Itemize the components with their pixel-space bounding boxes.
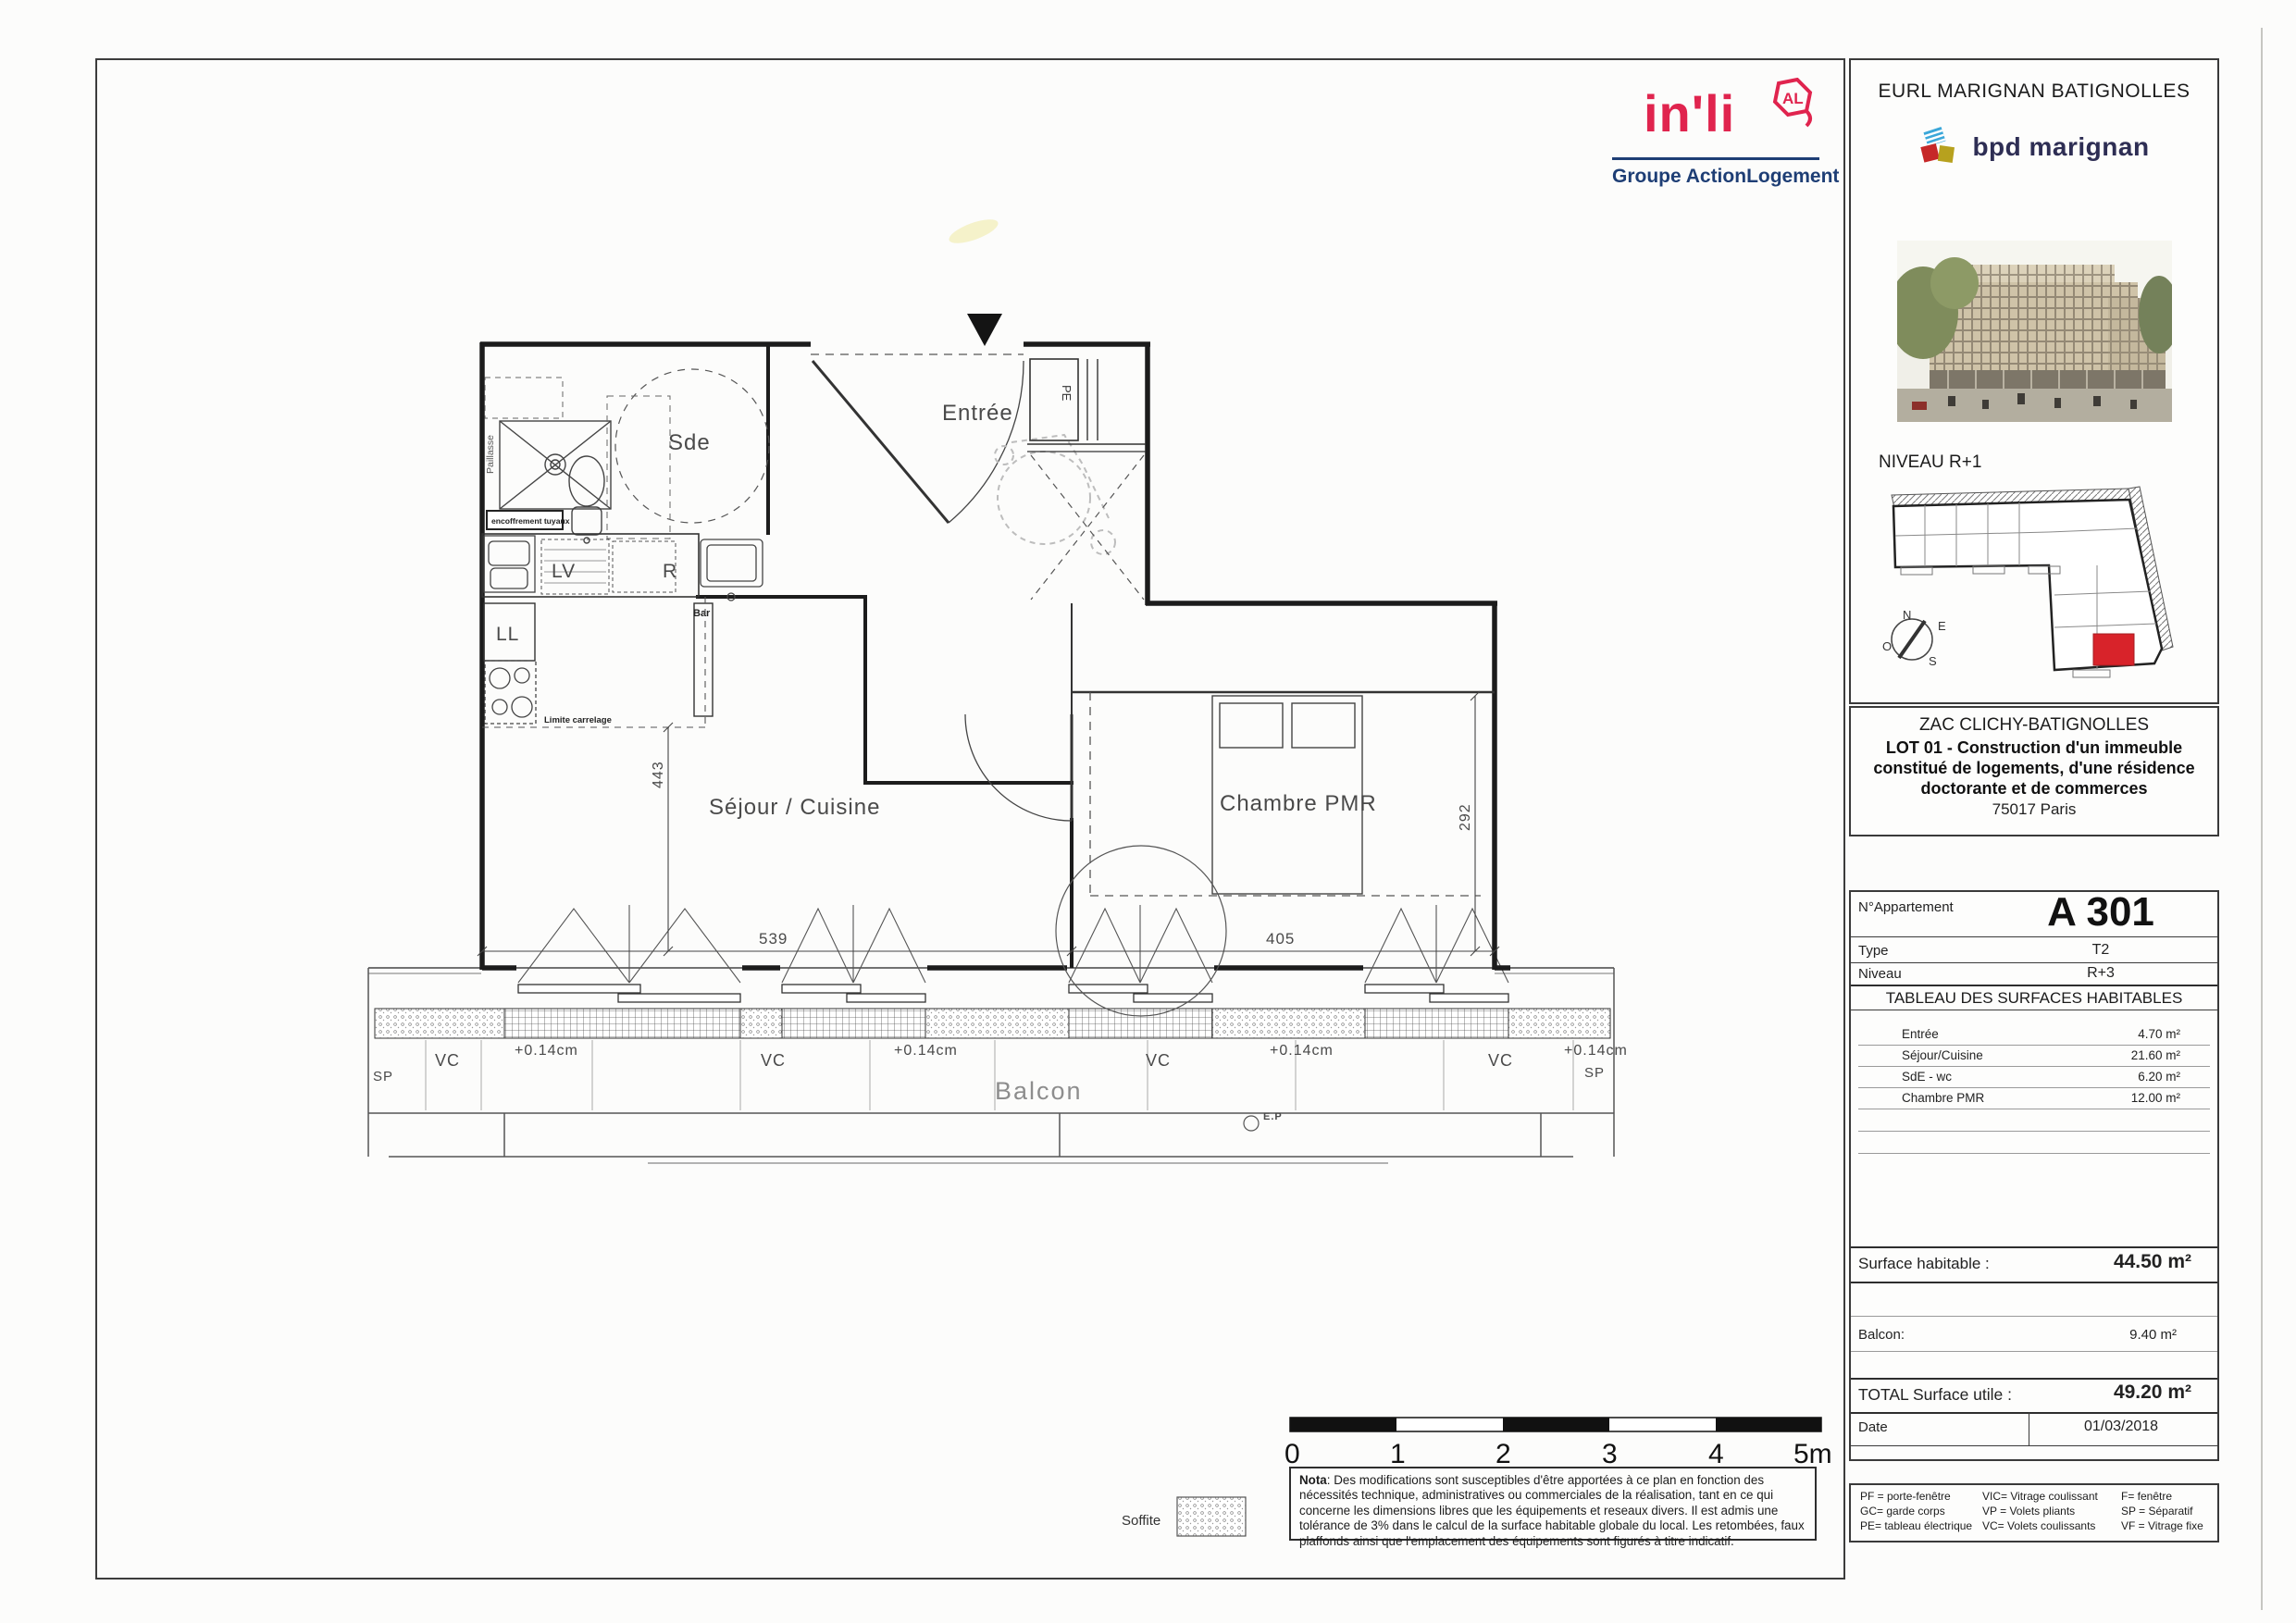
room-row-area: 12.00 m²	[2131, 1091, 2180, 1105]
legend-item: VP = Volets pliants	[1982, 1505, 2098, 1519]
nota-box: Nota: Des modifications sont susceptible…	[1289, 1467, 1817, 1541]
room-row-area: 4.70 m²	[2138, 1027, 2180, 1041]
inli-group-bold: Logement	[1746, 166, 1839, 187]
project-city: 75017 Paris	[1851, 800, 2217, 819]
room-row-label: Chambre PMR	[1902, 1091, 1984, 1105]
compass-icon: N E O S	[1882, 608, 1946, 668]
legend-col-1: PF = porte-fenêtre GC= garde corps PE= t…	[1860, 1490, 1972, 1533]
keyplan: N E O S	[1864, 475, 2204, 700]
project-box: ZAC CLICHY-BATIGNOLLES LOT 01 - Construc…	[1849, 706, 2219, 836]
inli-al-badge-icon: AL	[1758, 78, 1819, 137]
inli-rule	[1612, 157, 1819, 160]
surface-value: 44.50 m²	[2114, 1251, 2191, 1273]
inli-logo: in'li AL Groupe ActionLogement	[1612, 78, 1819, 188]
date-value: 01/03/2018	[2029, 1419, 2214, 1435]
surface-label: Surface habitable :	[1858, 1255, 1990, 1273]
apartment-table: N°Appartement A 301 Type T2 Niveau R+3 T…	[1849, 890, 2219, 1461]
balcony-label: Balcon:	[1858, 1327, 1905, 1343]
paper-edge	[2261, 28, 2263, 1610]
keyplan-level-label: NIVEAU R+1	[1879, 452, 1981, 473]
room-row-label: SdE - wc	[1902, 1070, 1952, 1084]
room-row-label: Entrée	[1902, 1027, 1939, 1041]
legend-item: F= fenêtre	[2121, 1490, 2203, 1505]
legend-box: PF = porte-fenêtre GC= garde corps PE= t…	[1849, 1483, 2219, 1542]
apartment-type-label: Type	[1858, 943, 1889, 959]
legend-col-2: VIC= Vitrage coulissant VP = Volets plia…	[1982, 1490, 2098, 1533]
svg-text:S: S	[1929, 654, 1937, 668]
total-value: 49.20 m²	[2114, 1381, 2191, 1404]
svg-text:N: N	[1903, 608, 1911, 622]
nota-body: : Des modifications sont susceptibles d'…	[1299, 1473, 1805, 1548]
room-row-area: 21.60 m²	[2131, 1048, 2180, 1062]
legend-item: PE= tableau électrique	[1860, 1519, 1972, 1534]
project-zac: ZAC CLICHY-BATIGNOLLES	[1851, 715, 2217, 736]
main-drawing-frame	[95, 58, 1845, 1580]
legend-item: VC= Volets coulissants	[1982, 1519, 2098, 1534]
inli-group-label: Groupe ActionLogement	[1612, 166, 1819, 188]
balcony-value: 9.40 m²	[2129, 1327, 2177, 1343]
building-photo	[1897, 241, 2172, 422]
keyplan-unit-highlight	[2093, 634, 2134, 665]
bpd-marignan-logo: bpd marignan	[1851, 127, 2217, 167]
svg-text:AL: AL	[1782, 90, 1804, 107]
inli-group-normal: Groupe Action	[1612, 166, 1746, 187]
company-title: EURL MARIGNAN BATIGNOLLES	[1851, 81, 2217, 103]
apartment-number-label: N°Appartement	[1858, 899, 1954, 915]
floorplan-sheet: { "header": { "company": "EURL MARIGNAN …	[0, 0, 2296, 1623]
date-label: Date	[1858, 1419, 1888, 1435]
inli-wordmark: in'li	[1644, 91, 1735, 137]
svg-text:E: E	[1938, 619, 1946, 633]
surfaces-table-title: TABLEAU DES SURFACES HABITABLES	[1851, 989, 2217, 1008]
legend-item: VIC= Vitrage coulissant	[1982, 1490, 2098, 1505]
apartment-number: A 301	[1990, 889, 2212, 935]
sidebar-company-box: EURL MARIGNAN BATIGNOLLES bpd marignan	[1849, 58, 2219, 704]
room-row-area: 6.20 m²	[2138, 1070, 2180, 1084]
apartment-level-label: Niveau	[1858, 966, 1902, 982]
apartment-type: T2	[1990, 942, 2212, 959]
legend-item: GC= garde corps	[1860, 1505, 1972, 1519]
svg-text:O: O	[1882, 639, 1892, 653]
room-row-label: Séjour/Cuisine	[1902, 1048, 1983, 1062]
legend-col-3: F= fenêtre SP = Séparatif VF = Vitrage f…	[2121, 1490, 2203, 1533]
legend-item: PF = porte-fenêtre	[1860, 1490, 1972, 1505]
bpd-marignan-wordmark: bpd marignan	[1972, 132, 2149, 162]
legend-item: SP = Séparatif	[2121, 1505, 2203, 1519]
legend-item: VF = Vitrage fixe	[2121, 1519, 2203, 1534]
apartment-level: R+3	[1990, 965, 2212, 982]
total-label: TOTAL Surface utile :	[1858, 1385, 2012, 1405]
bpd-marignan-icon	[1918, 127, 1961, 167]
project-lot: LOT 01 - Construction d'un immeuble cons…	[1858, 737, 2210, 799]
nota-title: Nota	[1299, 1473, 1327, 1487]
